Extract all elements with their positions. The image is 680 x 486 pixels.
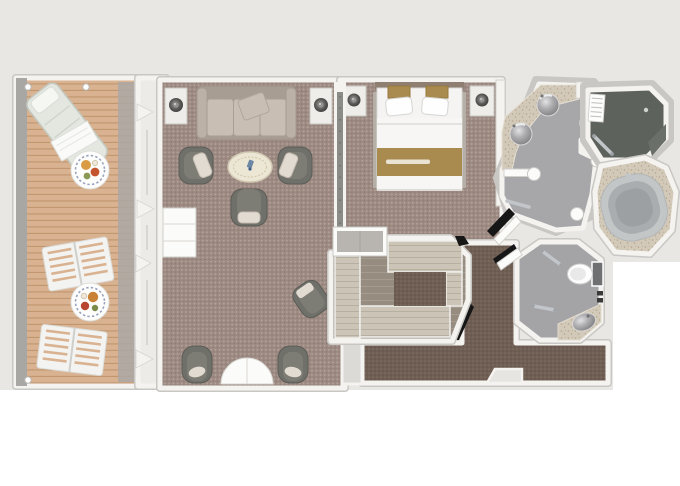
- column: [571, 208, 584, 221]
- rail-post: [25, 377, 31, 383]
- tub-chair: [182, 346, 212, 383]
- double-bed: [373, 82, 466, 190]
- deck-chair: [37, 324, 108, 376]
- breakfast-plate-table: [71, 283, 109, 321]
- wardrobe-shelf-top: [388, 241, 462, 272]
- side-table-lamp: [310, 88, 332, 124]
- wardrobe-shelf-left: [335, 256, 360, 338]
- armchair: [231, 189, 267, 226]
- tub-chair: [278, 346, 308, 383]
- vanity-sink: [510, 123, 532, 145]
- pillow: [385, 97, 413, 117]
- floor-plan-canvas: [0, 0, 680, 486]
- side-table-lamp: [165, 88, 187, 124]
- service-recess: [342, 343, 362, 384]
- armchair: [278, 147, 312, 184]
- shower-mat: [588, 94, 605, 122]
- room-living: [160, 80, 345, 388]
- wardrobe-shelf-bottom: [360, 306, 450, 337]
- paper-holder: [597, 291, 603, 296]
- vanity-sink: [537, 94, 559, 116]
- rail-post: [25, 84, 31, 90]
- breakfast-plate-table: [71, 151, 109, 189]
- writing-desk: [163, 208, 196, 257]
- coffee-table: [228, 152, 272, 182]
- column: [528, 168, 541, 181]
- floor-plan: [0, 0, 680, 486]
- wardrobe-shelf-right: [446, 272, 462, 306]
- vanity-desk: [333, 227, 387, 256]
- closet-carpet: [394, 272, 446, 306]
- room-balcony: [16, 78, 140, 386]
- paper-holder: [597, 298, 603, 303]
- accent-cushion: [426, 86, 448, 98]
- sofa: [197, 86, 296, 140]
- room-closet: [331, 227, 469, 341]
- rail-post: [83, 84, 89, 90]
- nightstand-lamp: [470, 86, 494, 116]
- room-shower: [584, 84, 670, 164]
- balcony-rail-left: [16, 78, 27, 386]
- shower-drain: [644, 108, 648, 112]
- armchair: [179, 147, 213, 184]
- pillow: [421, 97, 448, 116]
- room-bathtub: [595, 158, 676, 254]
- toilet: [568, 262, 604, 286]
- accent-cushion: [388, 86, 410, 98]
